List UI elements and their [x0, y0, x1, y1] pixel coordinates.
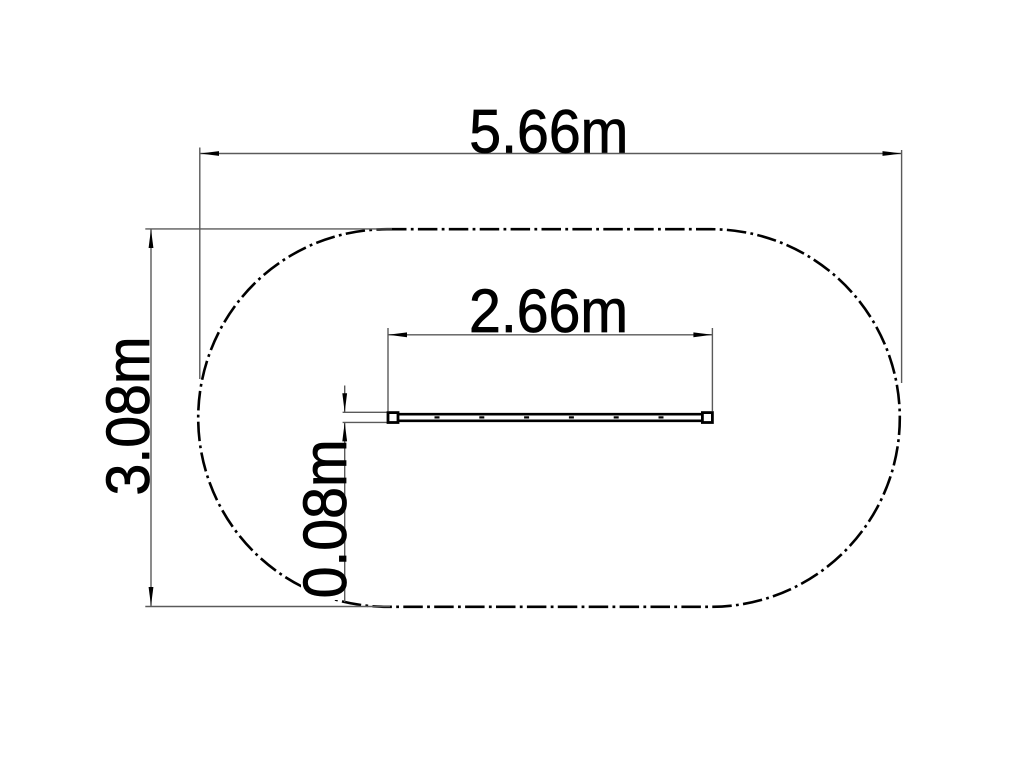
svg-text:0.08m: 0.08m	[291, 439, 359, 598]
svg-text:5.66m: 5.66m	[469, 98, 628, 166]
svg-text:2.66m: 2.66m	[469, 277, 628, 345]
svg-text:3.08m: 3.08m	[94, 337, 162, 496]
